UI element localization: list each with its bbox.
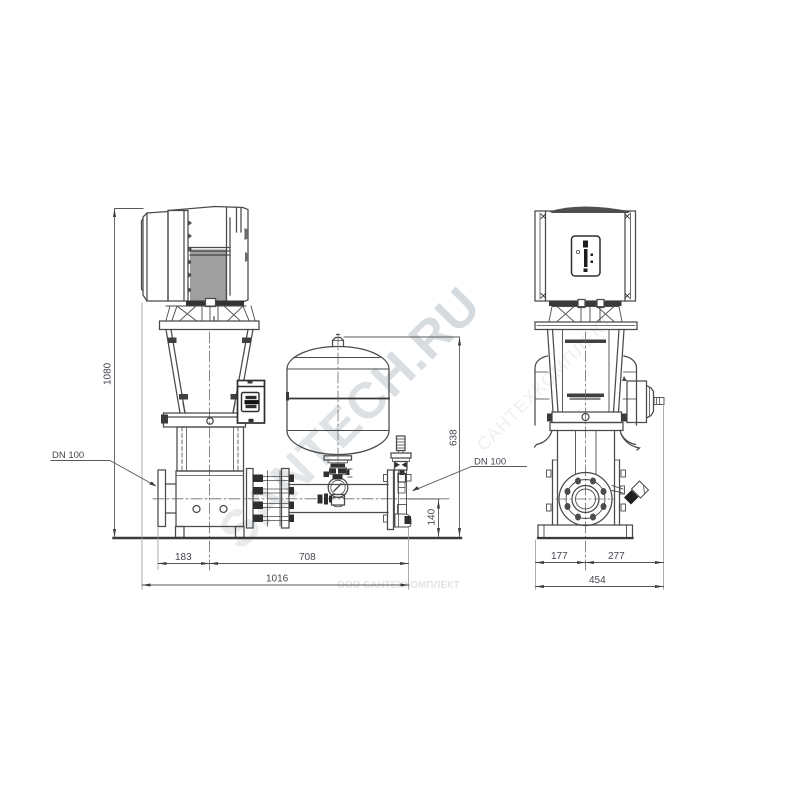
svg-text:454: 454 [589,575,606,586]
svg-text:140: 140 [427,508,438,525]
svg-text:277: 277 [608,551,625,562]
svg-text:1016: 1016 [266,574,289,585]
svg-text:ООО САНТЕХКОМПЛЕКТ: ООО САНТЕХКОМПЛЕКТ [337,580,460,591]
svg-text:177: 177 [551,551,568,562]
svg-text:708: 708 [299,552,316,563]
svg-text:DN 100: DN 100 [52,450,84,461]
svg-text:1080: 1080 [103,362,114,385]
svg-text:638: 638 [449,429,460,446]
svg-text:DN 100: DN 100 [474,457,506,468]
svg-text:183: 183 [175,552,192,563]
